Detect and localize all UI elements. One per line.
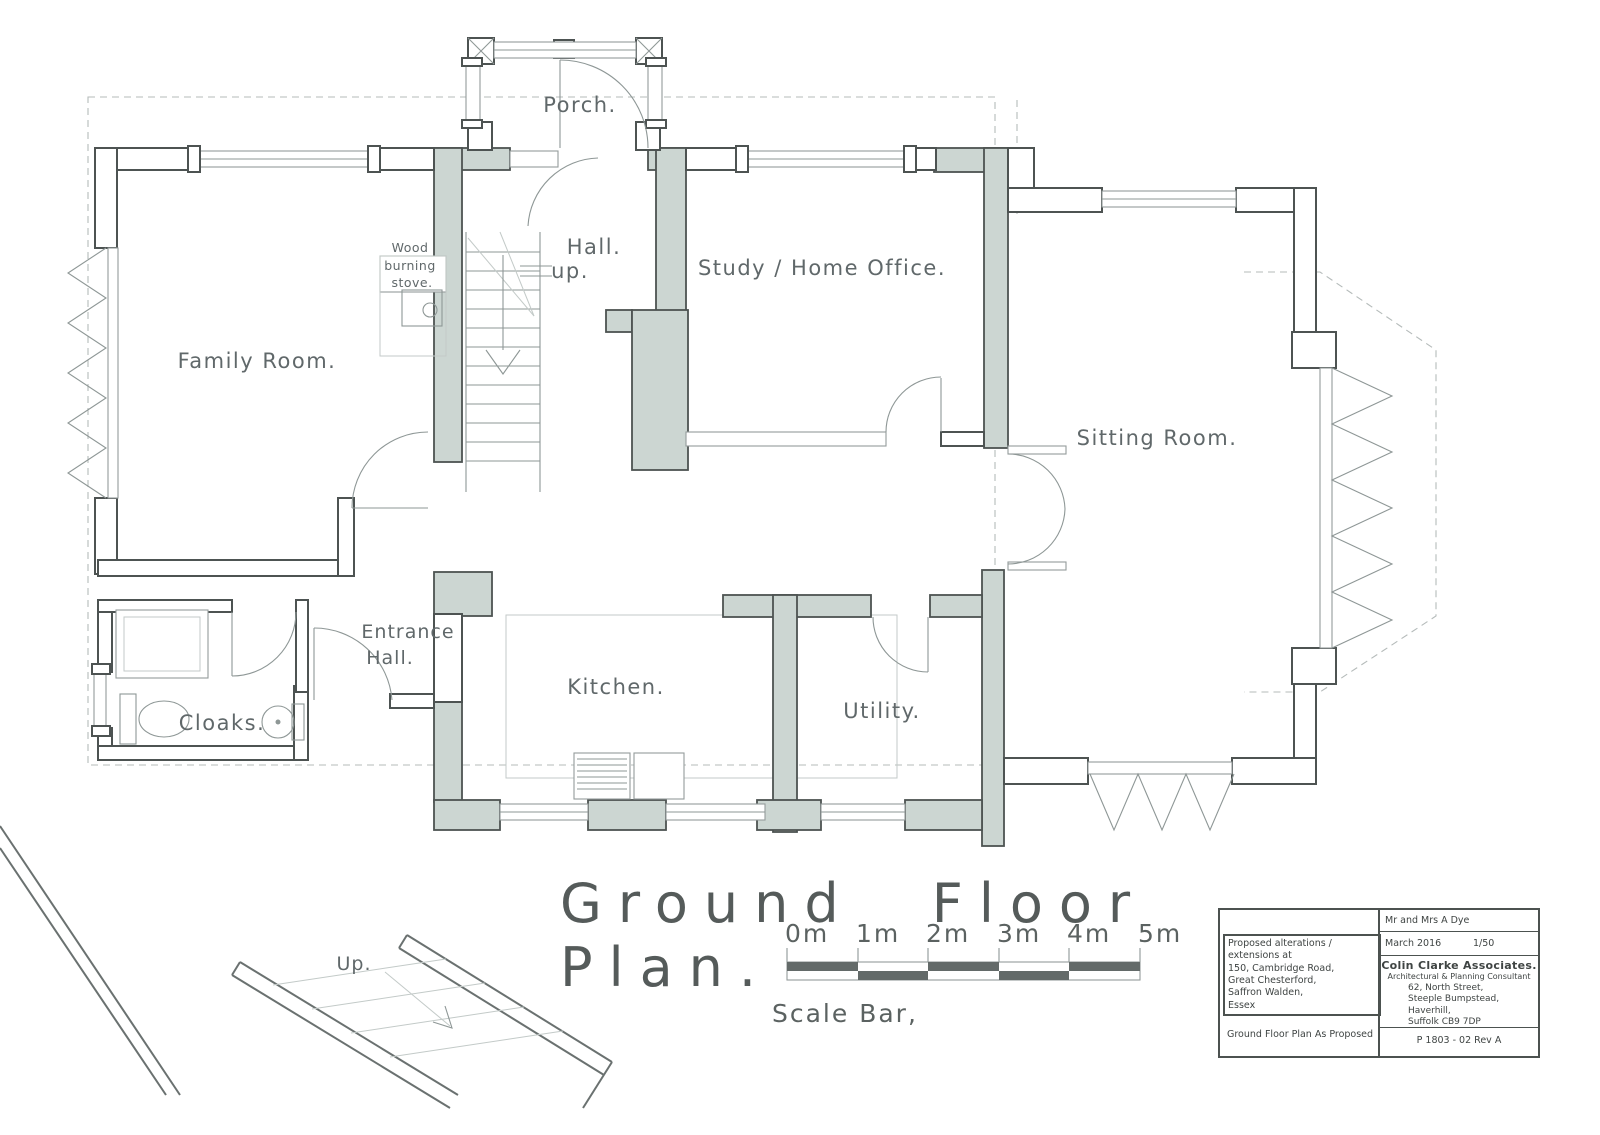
- sink-bowl: [634, 753, 684, 799]
- internal-stairs: [466, 232, 552, 492]
- client-name: Mr and Mrs A Dye: [1380, 910, 1538, 932]
- scale-tick-1: 1m: [856, 919, 900, 948]
- project-line: Essex: [1228, 1000, 1376, 1012]
- room-labels: Porch. Family Room. Hall. up. Study / Ho…: [178, 93, 1238, 975]
- bifold-doors: [68, 248, 1392, 830]
- label-stove-line1: Wood: [392, 240, 429, 255]
- scale-caption: Scale Bar,: [772, 999, 918, 1028]
- label-entrance-line2: Hall.: [366, 647, 414, 669]
- title-line1: Ground Floor: [560, 872, 1146, 935]
- drawing-date: March 2016: [1380, 932, 1473, 955]
- label-stove-line2: burning: [384, 258, 436, 273]
- title-block: Proposed alterations / extensions at 150…: [1218, 908, 1540, 1058]
- external-stairs: [0, 826, 612, 1108]
- label-family-room: Family Room.: [178, 349, 337, 373]
- firm-name: Colin Clarke Associates.: [1380, 959, 1538, 972]
- project-line: Proposed alterations / extensions at: [1228, 938, 1376, 963]
- floor-plan-page: Porch. Family Room. Hall. up. Study / Ho…: [0, 0, 1600, 1135]
- scale-tick-0: 0m: [785, 919, 829, 948]
- label-kitchen: Kitchen.: [567, 675, 665, 699]
- title-block-right-column: Mr and Mrs A Dye March 2016 1/50 Colin C…: [1380, 910, 1538, 1056]
- kitchen-rooflight-outline: [506, 615, 897, 778]
- firm-subtitle: Architectural & Planning Consultant: [1380, 972, 1538, 981]
- label-hall: Hall.: [567, 235, 622, 259]
- label-entrance-line1: Entrance: [361, 621, 454, 643]
- sink-drainer: [574, 753, 630, 799]
- drawing-number: P 1803 - 02 Rev A: [1380, 1028, 1538, 1054]
- drawing-scale: 1/50: [1473, 932, 1494, 955]
- date-scale-row: March 2016 1/50: [1380, 932, 1538, 956]
- scale-tick-5: 5m: [1138, 919, 1182, 948]
- scale-tick-2: 2m: [926, 919, 970, 948]
- toilet-cistern: [120, 694, 136, 744]
- project-line: 150, Cambridge Road,: [1228, 963, 1376, 975]
- label-study: Study / Home Office.: [698, 256, 946, 280]
- project-address: Proposed alterations / extensions at 150…: [1223, 934, 1381, 1016]
- label-utility: Utility.: [843, 699, 920, 723]
- kitchen-fittings: [574, 753, 684, 799]
- firm-address: 62, North Street, Steeple Bumpstead, Hav…: [1380, 983, 1538, 1028]
- firm-details: Colin Clarke Associates. Architectural &…: [1380, 956, 1538, 1028]
- scale-tick-4: 4m: [1067, 919, 1111, 948]
- title-block-left-column: Proposed alterations / extensions at 150…: [1220, 910, 1380, 1056]
- label-hall-up: up.: [551, 259, 589, 283]
- project-line: Great Chesterford,: [1228, 975, 1376, 987]
- label-cloaks: Cloaks.: [179, 711, 266, 735]
- label-sitting-room: Sitting Room.: [1077, 426, 1238, 450]
- title-line2: Plan.: [560, 936, 772, 999]
- label-external-up: Up.: [336, 953, 371, 975]
- scale-tick-3: 3m: [997, 919, 1041, 948]
- walls-new: [434, 148, 1008, 846]
- drawing-title-text: Ground Floor Plan As Proposed: [1227, 1029, 1373, 1040]
- label-stove-line3: stove.: [391, 275, 432, 290]
- label-porch: Porch.: [543, 93, 616, 117]
- scale-bar: 0m 1m 2m 3m 4m 5m Scale Bar,: [772, 919, 1182, 1028]
- project-line: Saffron Walden,: [1228, 987, 1376, 999]
